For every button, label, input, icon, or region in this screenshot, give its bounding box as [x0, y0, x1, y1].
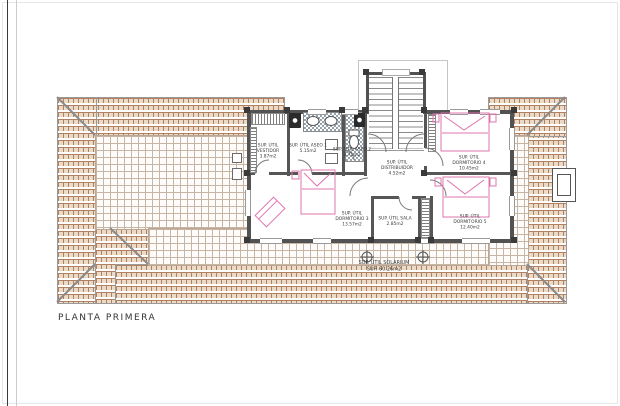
drawing-title: PLANTA PRIMERA	[58, 313, 156, 323]
room-label-aseo-2: SUP. ÚTIL ASEO 2 3.71m2	[333, 147, 371, 158]
plan-detail-overlay	[0, 0, 620, 406]
bed-dormitorio-5	[435, 177, 496, 217]
room-label-vestidor: SUP. ÚTIL VESTIDOR 3.87m2	[257, 143, 279, 160]
room-area: 4.52m2	[381, 171, 413, 177]
room-label-sala: SUP. ÚTIL SALA 2.85m2	[378, 216, 411, 227]
room-label-aseo-1: SUP. ÚTIL ASEO 1 5.15m2	[289, 143, 327, 154]
room-label-dormitorio-4: SUP. ÚTIL DORMITORIO 4 10.45m2	[452, 155, 485, 172]
room-area: SUP. 60.26m2	[359, 266, 410, 272]
room-label-distribuidor: SUP. ÚTIL DISTRIBUIDOR 4.52m2	[381, 160, 413, 177]
room-area: 2.85m2	[378, 221, 411, 227]
room-label-dormitorio-5: SUP. ÚTIL DORMITORIO 5 12.40m2	[453, 214, 486, 231]
room-area: 12.40m2	[453, 225, 486, 231]
armchair	[255, 197, 285, 227]
bed-dormitorio-3	[292, 170, 335, 214]
room-area: 13.57m2	[335, 222, 368, 228]
room-label-solarium: SUP. ÚTIL SOLARIUM SUP. 60.26m2	[359, 260, 410, 272]
room-label-dormitorio-3: SUP. ÚTIL DORMITORIO 3 13.57m2	[335, 211, 368, 228]
room-area: 10.45m2	[452, 166, 485, 172]
bed-dormitorio-4	[433, 113, 496, 151]
room-area: 5.15m2	[289, 148, 327, 154]
drain-symbol	[416, 250, 430, 264]
plan-sheet: SUP. ÚTIL VESTIDOR 3.87m2 SUP. ÚTIL ASEO…	[0, 0, 620, 406]
room-area: 3.71m2	[333, 152, 371, 158]
room-area: 3.87m2	[257, 154, 279, 160]
